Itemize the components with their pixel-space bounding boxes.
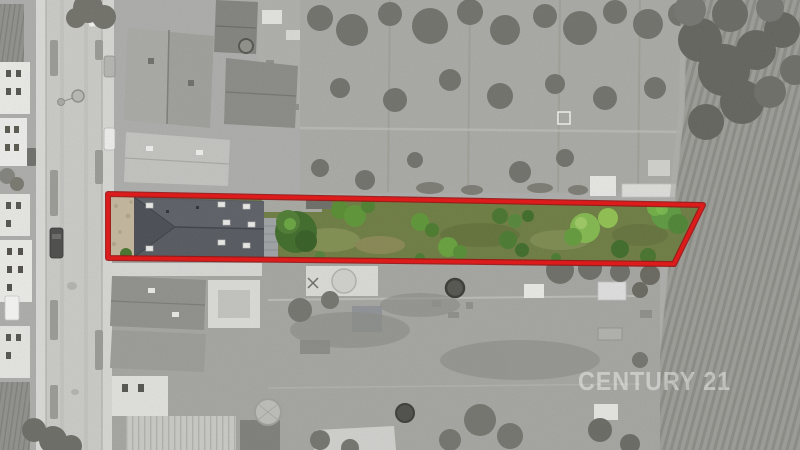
century21-watermark: CENTURY 21 (578, 366, 731, 396)
aerial-photo-canvas: CENTURY 21 (0, 0, 800, 450)
aerial-photo: CENTURY 21 (0, 0, 800, 450)
